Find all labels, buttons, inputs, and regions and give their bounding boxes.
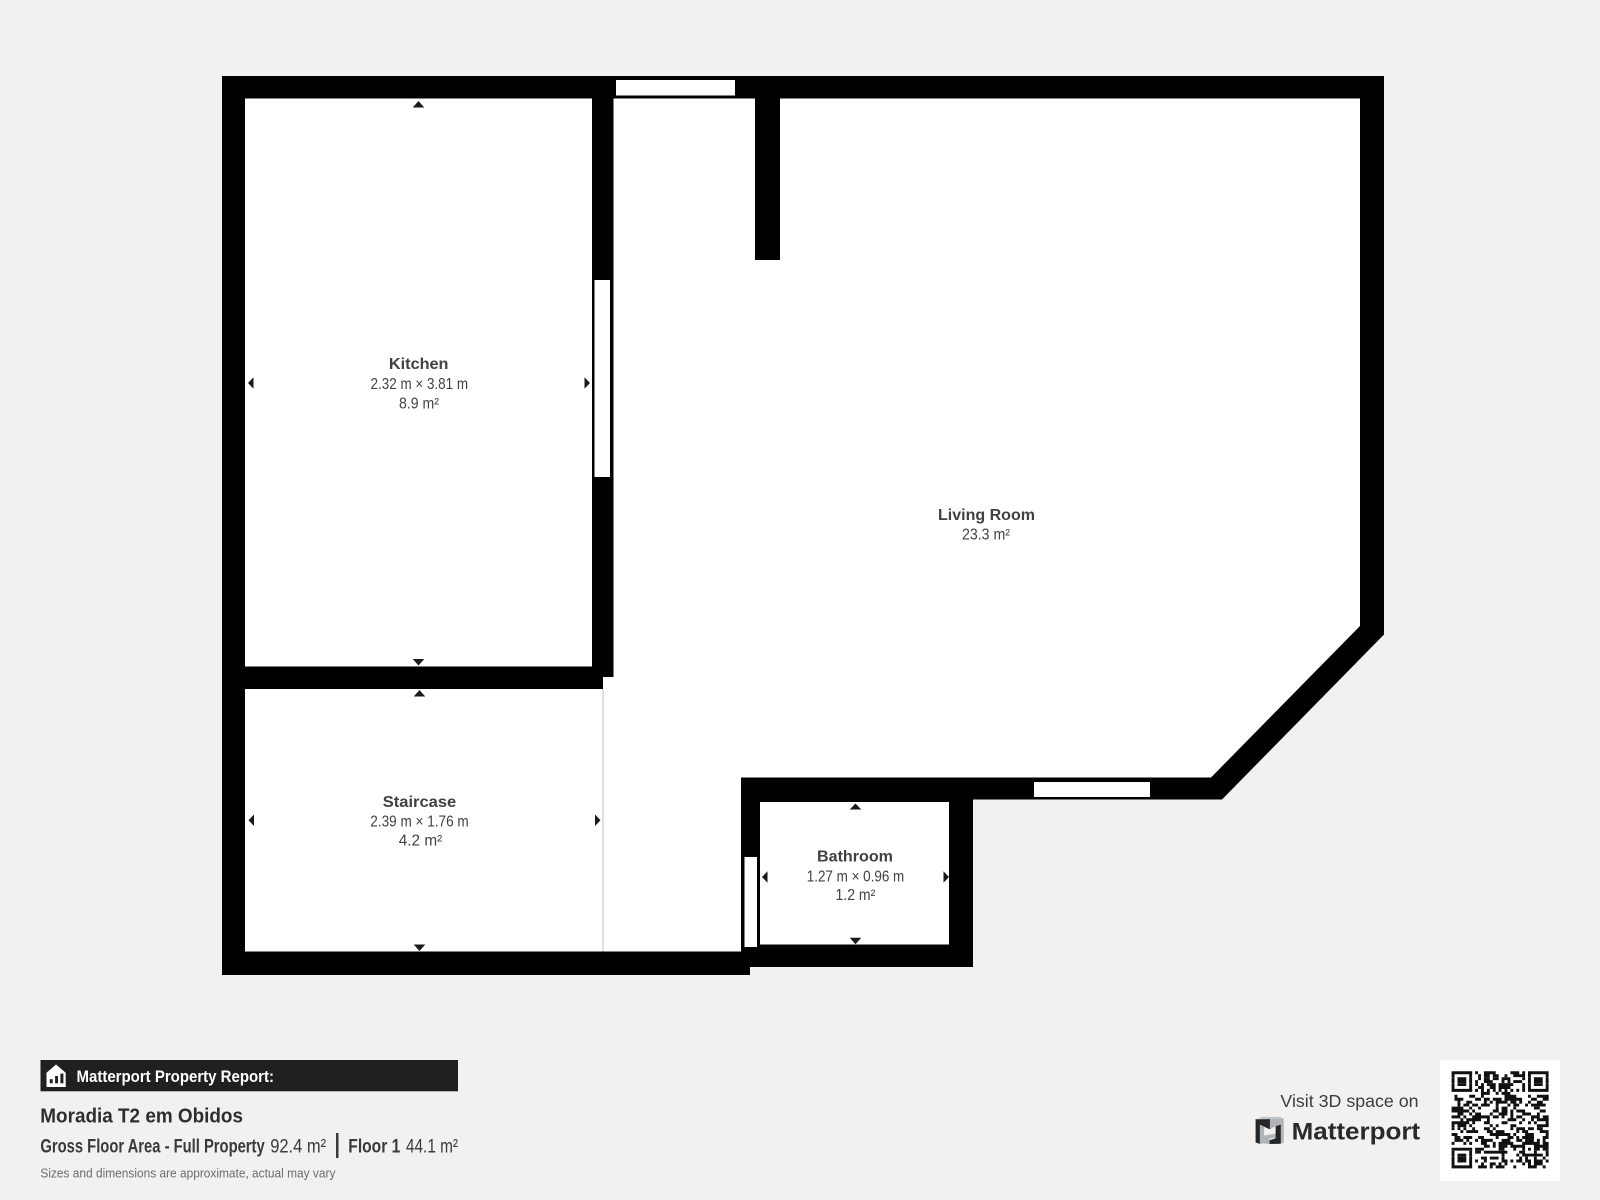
svg-text:1.27 m × 0.96 m: 1.27 m × 0.96 m <box>807 869 905 886</box>
svg-text:Sizes and dimensions are appro: Sizes and dimensions are approximate, ac… <box>40 1166 335 1181</box>
svg-text:44.1 m²: 44.1 m² <box>406 1136 458 1157</box>
svg-text:Gross Floor Area - Full Proper: Gross Floor Area - Full Property <box>40 1136 265 1157</box>
svg-text:Matterport Property Report:: Matterport Property Report: <box>77 1067 275 1086</box>
svg-text:Matterport: Matterport <box>1292 1119 1421 1146</box>
svg-text:Floor 1: Floor 1 <box>348 1136 400 1157</box>
svg-text:Staircase: Staircase <box>383 794 457 811</box>
svg-text:1.2 m²: 1.2 m² <box>836 887 876 904</box>
svg-text:Visit 3D space on: Visit 3D space on <box>1280 1091 1418 1111</box>
svg-text:Living Room: Living Room <box>938 507 1035 524</box>
svg-text:92.4 m²: 92.4 m² <box>270 1136 326 1157</box>
svg-text:Bathroom: Bathroom <box>817 849 893 866</box>
svg-text:23.3 m²: 23.3 m² <box>962 527 1010 544</box>
svg-text:Kitchen: Kitchen <box>389 356 449 373</box>
svg-text:Moradia T2 em Obidos: Moradia T2 em Obidos <box>40 1104 243 1127</box>
svg-text:2.32 m × 3.81 m: 2.32 m × 3.81 m <box>371 376 469 393</box>
svg-text:4.2 m²: 4.2 m² <box>399 833 443 850</box>
svg-text:8.9 m²: 8.9 m² <box>399 396 439 413</box>
svg-text:2.39 m × 1.76 m: 2.39 m × 1.76 m <box>370 814 469 831</box>
